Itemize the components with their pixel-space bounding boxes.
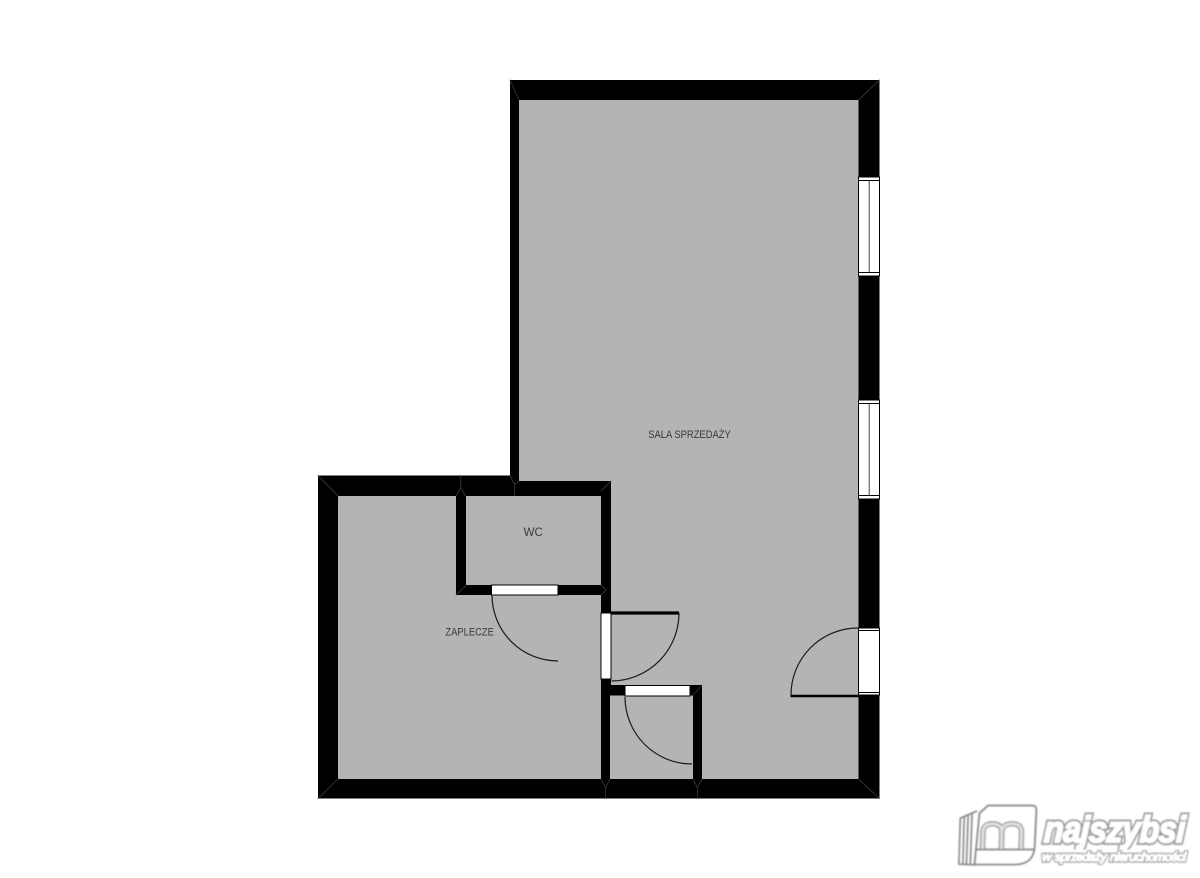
svg-text:najszybsi: najszybsi [1043,810,1188,851]
svg-text:SALA SPRZEDAŻY: SALA SPRZEDAŻY [648,427,731,441]
svg-text:WC: WC [524,527,543,539]
svg-text:w sprzedaży nieruchomości: w sprzedaży nieruchomości [1042,850,1187,864]
svg-text:ZAPLECZE: ZAPLECZE [445,627,494,639]
